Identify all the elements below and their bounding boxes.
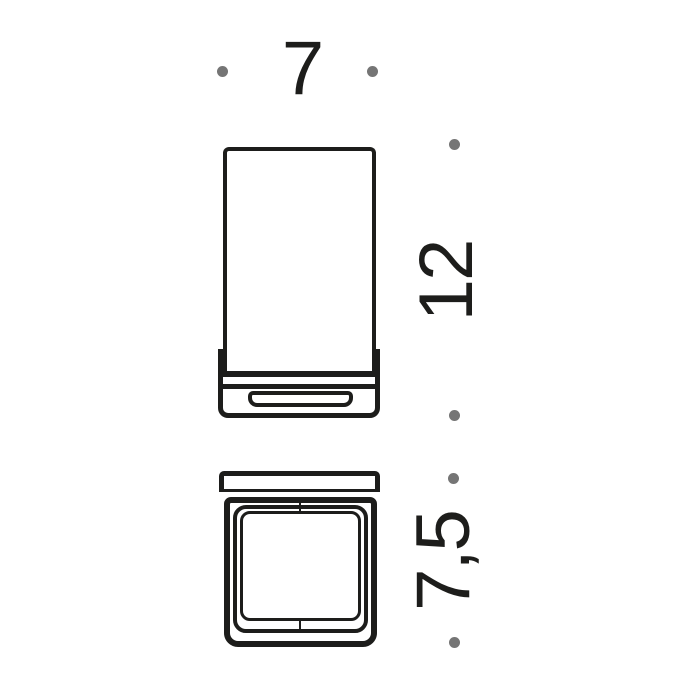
dimension-depth-label: 7,5 xyxy=(401,491,487,631)
glass-tumbler-outline xyxy=(223,147,376,376)
glass-inner-wall xyxy=(240,511,361,621)
center-mark-bottom xyxy=(299,620,301,632)
extent-dot-depth-bottom xyxy=(449,637,460,648)
extent-dot-width-left xyxy=(217,66,228,77)
bracket-underside-slot xyxy=(248,391,353,407)
dimension-width-label: 7 xyxy=(252,26,352,112)
bracket-shelf-bottom-line xyxy=(218,384,380,389)
technical-drawing-canvas: 7 12 7,5 xyxy=(0,0,700,700)
extent-dot-depth-top xyxy=(448,473,459,484)
dimension-height-label: 12 xyxy=(404,211,490,351)
extent-dot-height-top xyxy=(449,139,460,150)
extent-dot-height-bottom xyxy=(449,410,460,421)
extent-dot-width-right xyxy=(367,66,378,77)
wall-plate-section xyxy=(219,471,380,492)
bracket-shelf-top-line xyxy=(218,371,380,377)
center-mark-top xyxy=(299,501,301,513)
